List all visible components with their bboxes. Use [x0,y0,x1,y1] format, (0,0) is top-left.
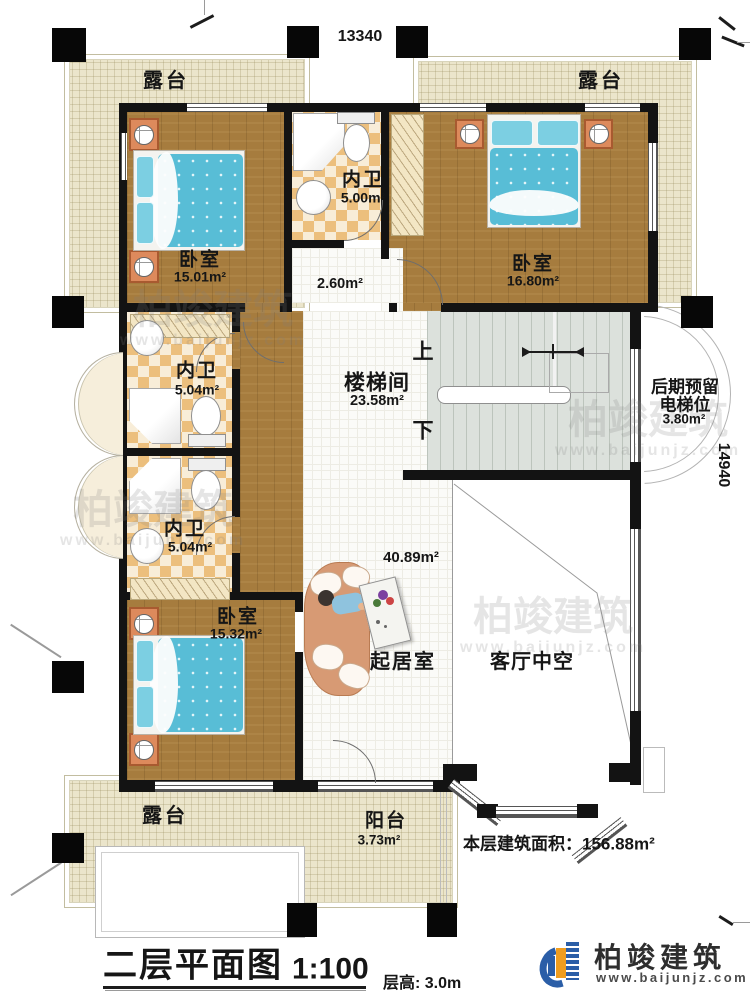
label-bath-mid: 内卫 [176,362,218,383]
flower-decoration [386,597,394,605]
crop-line-br [733,922,750,923]
label-bedroom-tl-area: 15.01m² [174,269,226,284]
label-bedroom-tr-area: 16.80m² [507,273,559,288]
label-balcony-area: 3.73m² [358,834,401,849]
label-terrace-tr: 露台 [578,70,624,92]
watermark: 柏竣建筑 www.baijunjz.com [460,595,646,657]
label-void: 客厅中空 [490,651,574,673]
balcony-rail-line [440,782,441,904]
wall [381,245,389,259]
nightstand [129,250,159,283]
label-terrace-tl: 露台 [143,70,189,92]
column [681,296,713,328]
living-void-divider [452,480,453,780]
pillow [537,120,579,146]
crop-mark-br [718,915,733,926]
elevator-shaft-outline [549,353,609,393]
pillow [136,686,154,728]
label-stairs-up: 上 [413,340,434,363]
label-stairs-down: 下 [413,419,434,442]
watermark-text: 柏竣建筑 [555,398,741,442]
floor-height-note: 层高: 3.0m [383,975,461,993]
label-bath-top-area: 5.00m² [341,190,385,205]
logo-icon [540,938,592,990]
logo-url: www.baijunjz.com [596,970,748,985]
watermark-text: 柏竣建筑 [60,488,246,532]
pillow [136,202,154,244]
stair-arrow-tick [552,344,554,359]
dimension-top: 13340 [338,28,383,46]
label-elevator-area: 3.80m² [663,413,706,428]
roof-edge-line [10,862,61,896]
bay-corner [477,804,498,818]
bay-window-bottom [496,806,580,818]
lamp-icon [589,124,609,144]
label-bedroom-bl-area: 15.32m² [210,626,262,641]
label-bath-low-area: 5.04m² [168,539,212,554]
watermark: 柏竣建筑 www.baijunjz.com [120,288,306,350]
toilet [191,396,221,436]
lamp-icon [134,257,154,277]
exterior-step-outline [643,747,665,793]
wall [295,600,303,612]
watermark-url: www.baijunjz.com [555,442,741,460]
window [585,103,640,112]
label-living-area: 40.89m² [383,550,439,567]
label-bath-mid-area: 5.04m² [175,382,219,397]
label-elevator-1: 后期预留 [651,379,719,398]
dimension-right: 14940 [714,443,732,488]
toilet [188,434,226,447]
flower-decoration [373,599,381,607]
logo: 柏竣建筑 www.baijunjz.com [540,934,750,994]
table-dot [384,625,387,628]
stair-arrow-right [575,347,584,357]
nightstand [584,119,613,149]
stair-arrow-left [522,347,531,357]
crop-mark-tr1 [718,16,736,31]
watermark: 柏竣建筑 www.baijunjz.com [555,398,741,460]
title-underline [103,986,366,989]
closet-hatch [130,578,230,600]
wall [403,470,641,480]
watermark-url: www.baijunjz.com [120,332,306,350]
watermark-text: 柏竣建筑 [120,288,306,332]
toilet [337,112,375,124]
pillow [491,120,533,146]
balcony-rail-line [446,782,447,904]
lamp-icon [134,740,154,760]
crop-mark-tl [190,14,215,28]
wall [441,303,658,312]
label-stairhall: 楼梯间 [344,371,410,394]
bay-window-left-upper [74,352,123,456]
window [155,781,273,792]
pillow [136,156,154,198]
nightstand [129,118,159,151]
label-corridor-area: 2.60m² [317,277,363,293]
column [52,28,86,62]
column [287,903,317,937]
lower-roof-outline [95,846,305,938]
column [52,296,84,328]
column [427,903,457,937]
column [396,26,428,58]
wall [389,303,397,312]
title-underline-2 [105,990,366,991]
label-bath-low: 内卫 [164,520,206,541]
column [52,833,84,863]
wall [295,652,303,792]
lamp-icon [460,124,480,144]
window [420,103,486,112]
plan-scale: 1:100 [292,953,369,986]
column [287,26,319,58]
wall [284,111,292,312]
label-terrace-bl: 露台 [142,805,188,827]
floor-area-note: 本层建筑面积：156.88m² [463,836,655,855]
table-dot [376,620,380,624]
nightstand [455,119,484,149]
sink [296,180,331,215]
label-stairhall-area: 23.58m² [350,394,404,410]
crop-line-tl [204,0,205,15]
toilet [343,124,370,162]
wall [630,311,641,349]
label-bath-top: 内卫 [342,171,384,192]
watermark: 柏竣建筑 www.baijunjz.com [60,488,246,550]
nightstand [129,733,159,766]
wall [292,240,344,248]
bay-corner [609,763,634,782]
watermark-url: www.baijunjz.com [60,532,246,550]
bay-corner [443,764,477,781]
column [679,28,711,60]
window [187,103,267,112]
pillow [136,640,154,682]
window [121,133,127,180]
lamp-icon [134,125,154,145]
wardrobe-hatch [391,114,424,236]
label-living: 起居室 [370,651,436,673]
window [648,143,658,231]
floor-plan-canvas: 柏竣建筑 www.baijunjz.com 柏竣建筑 www.baijunjz.… [0,0,750,1005]
watermark-text: 柏竣建筑 [460,595,646,639]
crop-line-tr [737,42,750,43]
wall [119,448,240,456]
column [52,661,84,693]
bay-corner [577,804,598,818]
label-balcony: 阳台 [365,812,407,833]
plan-title: 二层平面图 [103,947,283,984]
roof-edge-line [10,624,61,658]
lamp-icon [134,614,154,634]
